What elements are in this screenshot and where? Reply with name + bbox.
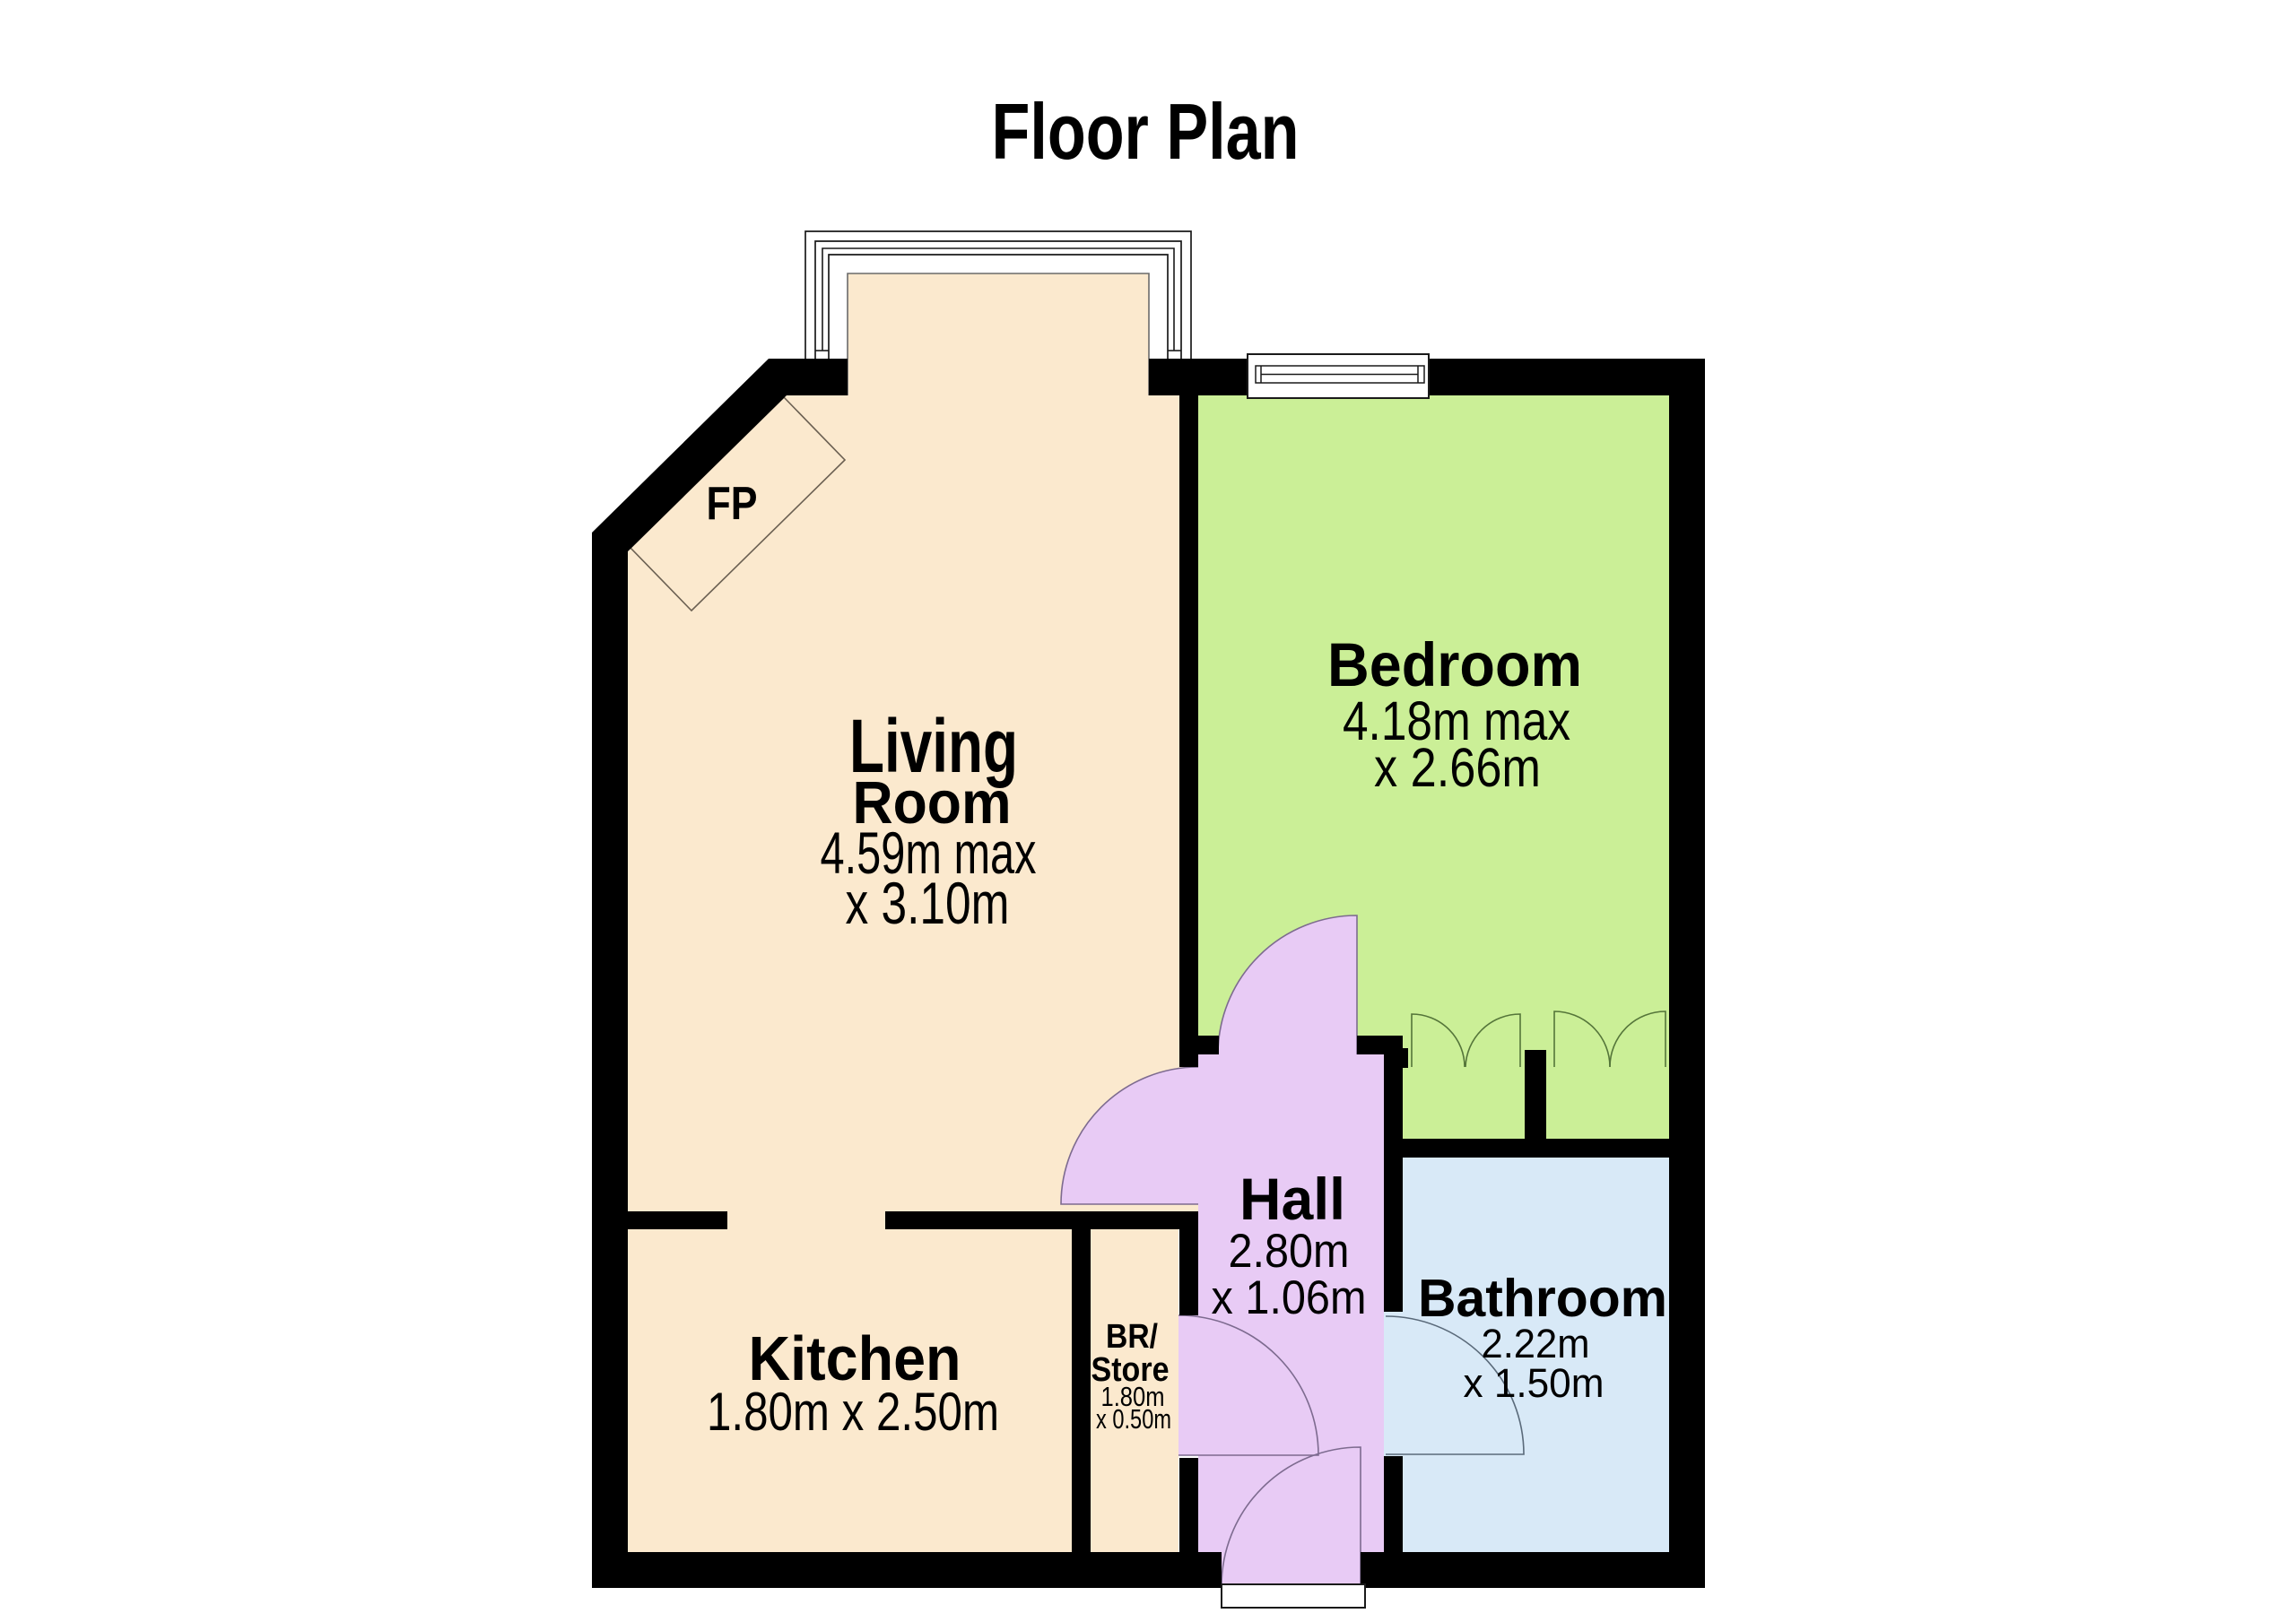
svg-text:BR/: BR/ (1106, 1318, 1158, 1356)
svg-text:Bedroom: Bedroom (1327, 630, 1582, 699)
svg-text:x 1.06m: x 1.06m (1212, 1271, 1367, 1324)
svg-text:x 1.50m: x 1.50m (1464, 1360, 1605, 1406)
svg-text:x 3.10m: x 3.10m (846, 870, 1010, 936)
svg-text:Hall: Hall (1239, 1166, 1345, 1232)
svg-text:1.80m x 2.50m: 1.80m x 2.50m (707, 1382, 999, 1442)
svg-text:x 0.50m: x 0.50m (1096, 1403, 1171, 1435)
svg-text:Floor Plan: Floor Plan (992, 87, 1300, 176)
svg-text:2.80m: 2.80m (1229, 1225, 1350, 1278)
svg-text:FP: FP (707, 478, 758, 530)
svg-text:x 2.66m: x 2.66m (1374, 737, 1541, 798)
svg-text:Bathroom: Bathroom (1418, 1269, 1667, 1328)
